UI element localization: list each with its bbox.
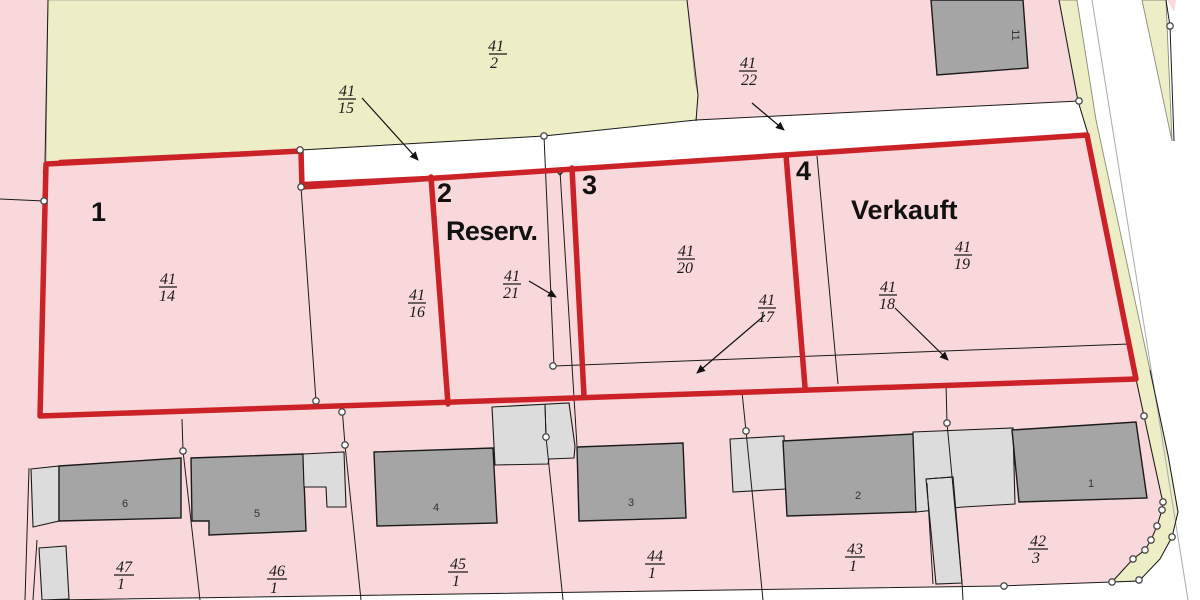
- svg-text:41: 41: [759, 292, 775, 309]
- svg-text:42: 42: [1030, 533, 1046, 550]
- svg-text:11: 11: [1009, 29, 1021, 40]
- svg-text:41: 41: [339, 83, 355, 100]
- svg-text:45: 45: [450, 556, 466, 573]
- svg-text:17: 17: [758, 309, 775, 326]
- svg-text:16: 16: [409, 304, 425, 321]
- svg-text:6: 6: [122, 498, 128, 510]
- svg-text:3: 3: [582, 170, 597, 200]
- svg-text:2: 2: [437, 178, 452, 208]
- svg-text:Verkauft: Verkauft: [851, 195, 958, 225]
- svg-text:41: 41: [740, 55, 756, 72]
- svg-text:41: 41: [880, 279, 896, 296]
- svg-text:41: 41: [955, 239, 971, 256]
- svg-text:3: 3: [1031, 550, 1040, 567]
- svg-text:18: 18: [879, 296, 895, 313]
- svg-text:47: 47: [116, 559, 133, 576]
- svg-text:21: 21: [503, 285, 519, 302]
- svg-text:1: 1: [117, 576, 125, 593]
- svg-text:1: 1: [648, 565, 656, 582]
- svg-text:1: 1: [849, 558, 857, 575]
- svg-text:15: 15: [338, 100, 354, 117]
- svg-text:5: 5: [254, 508, 260, 520]
- svg-text:4: 4: [433, 502, 439, 514]
- svg-text:41: 41: [160, 271, 176, 288]
- svg-text:1: 1: [270, 580, 278, 597]
- svg-text:41: 41: [504, 268, 520, 285]
- svg-text:1: 1: [1088, 478, 1094, 490]
- svg-text:19: 19: [954, 256, 970, 273]
- svg-text:1: 1: [452, 573, 460, 590]
- svg-text:41: 41: [678, 243, 694, 260]
- svg-text:44: 44: [647, 548, 663, 565]
- svg-text:43: 43: [847, 541, 863, 558]
- svg-text:2: 2: [855, 490, 861, 502]
- svg-text:4: 4: [796, 156, 811, 186]
- svg-text:20: 20: [677, 260, 693, 277]
- svg-text:3: 3: [628, 497, 634, 509]
- svg-text:41: 41: [409, 287, 425, 304]
- svg-text:1: 1: [91, 197, 106, 227]
- svg-text:14: 14: [159, 288, 175, 305]
- svg-text:2: 2: [490, 55, 498, 72]
- svg-text:46: 46: [269, 563, 285, 580]
- svg-text:41: 41: [488, 38, 504, 55]
- svg-text:Reserv.: Reserv.: [446, 216, 537, 246]
- svg-text:22: 22: [741, 72, 757, 89]
